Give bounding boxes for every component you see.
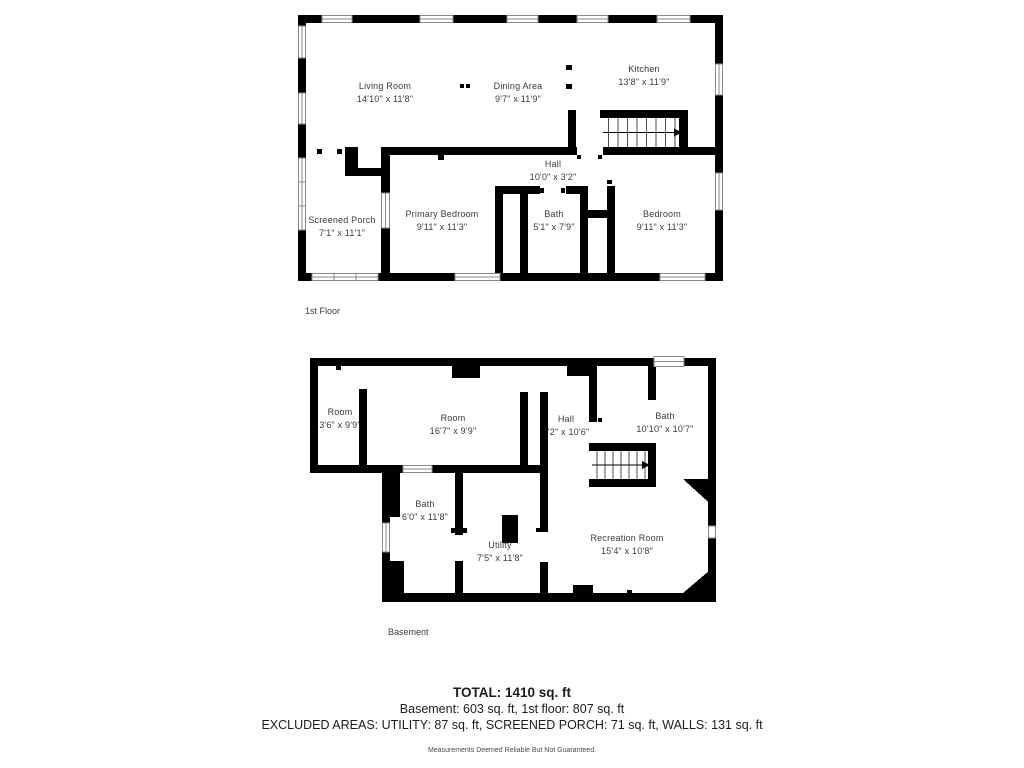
room-dims: 5'1" x 7'9" (533, 221, 575, 234)
first-floor-windows (299, 16, 723, 281)
floor-plan-drawing (0, 0, 1024, 768)
room-name: Dining Area (494, 80, 543, 93)
room-label-primary-bedroom: Primary Bedroom 9'11" x 11'3" (405, 208, 478, 234)
room-dims: 10'0" x 3'2" (530, 171, 577, 184)
room-dims: 4'2" x 10'6" (543, 426, 590, 439)
room-label-dining-area: Dining Area 9'7" x 11'9" (494, 80, 543, 106)
room-label-hall-first-floor: Hall 10'0" x 3'2" (530, 158, 577, 184)
room-dims: 6'0" x 11'8" (402, 511, 448, 524)
room-label-screened-porch: Screened Porch 7'1" x 11'1" (308, 214, 375, 240)
room-name: Recreation Room (590, 532, 663, 545)
room-label-living-room: Living Room 14'10" x 11'8" (357, 80, 414, 106)
room-name: Bath (636, 410, 693, 423)
room-label-kitchen: Kitchen 13'8" x 11'9" (618, 63, 669, 89)
basement-stairs (589, 443, 656, 487)
room-dims: 7'1" x 11'1" (308, 227, 375, 240)
room-name: Screened Porch (308, 214, 375, 227)
room-label-recreation-room: Recreation Room 15'4" x 10'8" (590, 532, 663, 558)
room-name: Bath (533, 208, 575, 221)
room-label-basement-room-large: Room 16'7" x 9'9" (430, 412, 477, 438)
room-dims: 15'4" x 10'8" (590, 545, 663, 558)
disclaimer-text: Measurements Deemed Reliable But Not Gua… (0, 746, 1024, 756)
room-dims: 9'7" x 11'9" (494, 93, 543, 106)
basement-plan (310, 357, 716, 603)
room-label-basement-bath-small: Bath 6'0" x 11'8" (402, 498, 448, 524)
room-name: Bath (402, 498, 448, 511)
room-dims: 7'5" x 11'8" (477, 552, 523, 565)
room-dims: 10'10" x 10'7" (636, 423, 693, 436)
room-label-basement-bath-large: Bath 10'10" x 10'7" (636, 410, 693, 436)
room-name: Hall (530, 158, 577, 171)
first-floor-exterior-walls (298, 15, 723, 281)
room-name: Hall (543, 413, 590, 426)
room-label-utility: Utility 7'5" x 11'8" (477, 539, 523, 565)
basement-interior-walls (359, 366, 656, 602)
room-dims: 9'11" x 11'3" (405, 221, 478, 234)
basement-exterior-walls (310, 358, 716, 602)
first-floor-label: 1st Floor (305, 306, 340, 316)
room-dims: 3'6" x 9'9" (319, 419, 361, 432)
recreation-corner-chamfer-bottom (683, 565, 716, 593)
recreation-corner-chamfer-top (683, 479, 716, 509)
room-label-basement-room-small: Room 3'6" x 9'9" (319, 406, 361, 432)
floor-plan-page: Living Room 14'10" x 11'8" Dining Area 9… (0, 0, 1024, 768)
room-name: Bedroom (637, 208, 688, 221)
room-name: Utility (477, 539, 523, 552)
room-label-bath-first-floor: Bath 5'1" x 7'9" (533, 208, 575, 234)
total-area-text: TOTAL: 1410 sq. ft (0, 684, 1024, 701)
room-dims: 16'7" x 9'9" (430, 425, 477, 438)
first-floor-interior-walls (345, 110, 723, 281)
stair-arrow (674, 129, 682, 137)
room-name: Living Room (357, 80, 414, 93)
room-dims: 13'8" x 11'9" (618, 76, 669, 89)
room-dims: 14'10" x 11'8" (357, 93, 414, 106)
stair-arrow (642, 461, 650, 469)
first-floor-stairs (603, 118, 682, 147)
room-label-basement-hall: Hall 4'2" x 10'6" (543, 413, 590, 439)
room-dims: 9'11" x 11'3" (637, 221, 688, 234)
summary-block: TOTAL: 1410 sq. ft Basement: 603 sq. ft,… (0, 684, 1024, 756)
floor-areas-text: Basement: 603 sq. ft, 1st floor: 807 sq.… (0, 701, 1024, 717)
excluded-areas-text: EXCLUDED AREAS: UTILITY: 87 sq. ft, SCRE… (0, 717, 1024, 733)
room-name: Room (319, 406, 361, 419)
room-name: Primary Bedroom (405, 208, 478, 221)
first-floor-plan (298, 15, 723, 281)
basement-label: Basement (388, 627, 429, 637)
room-name: Kitchen (618, 63, 669, 76)
room-name: Room (430, 412, 477, 425)
room-label-bedroom: Bedroom 9'11" x 11'3" (637, 208, 688, 234)
